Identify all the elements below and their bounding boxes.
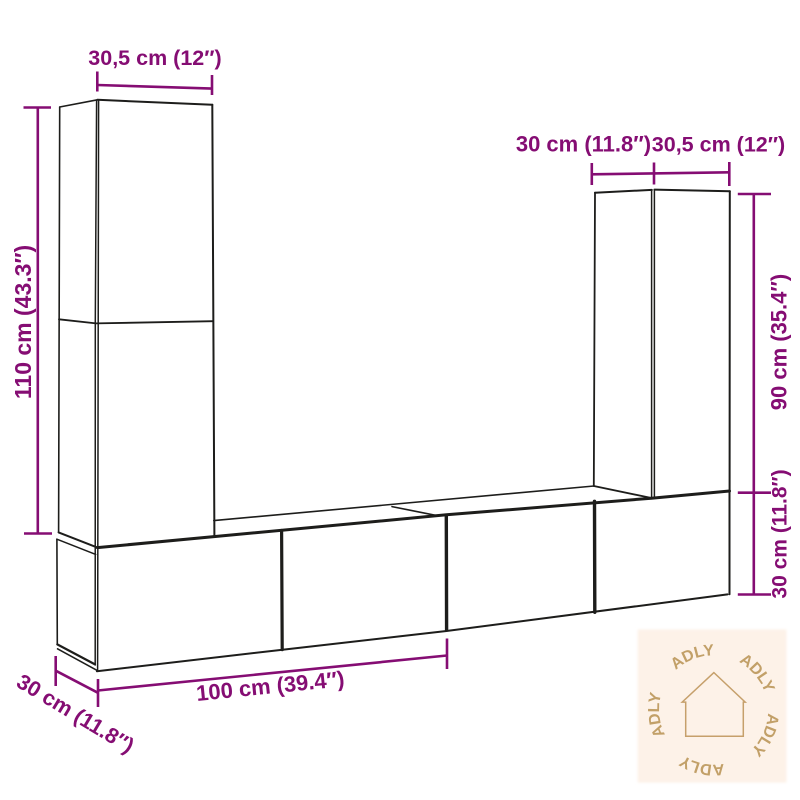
svg-text:110 cm (43.3″): 110 cm (43.3″) <box>10 245 36 399</box>
svg-text:30 cm (11.8″): 30 cm (11.8″) <box>769 469 792 598</box>
svg-text:90 cm (35.4″): 90 cm (35.4″) <box>767 274 792 411</box>
svg-text:30,5 cm (12″): 30,5 cm (12″) <box>652 133 785 157</box>
svg-text:30,5 cm (12″): 30,5 cm (12″) <box>88 46 221 70</box>
svg-text:30 cm (11.8″): 30 cm (11.8″) <box>516 132 651 157</box>
